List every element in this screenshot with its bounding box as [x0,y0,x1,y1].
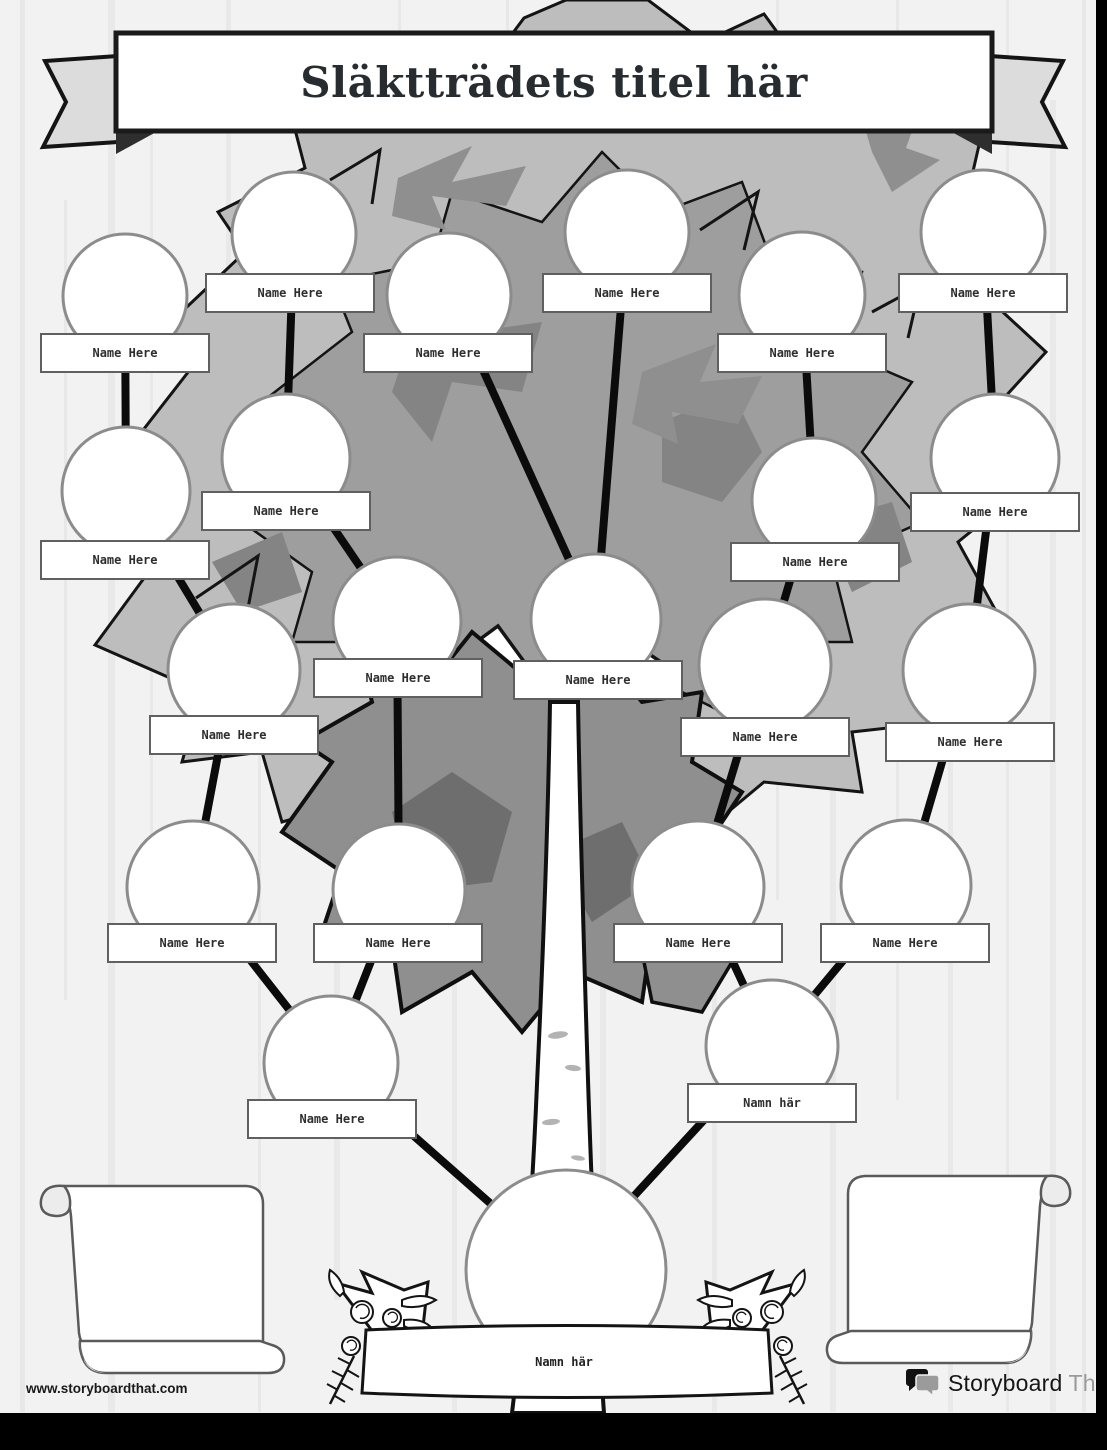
person-name-label[interactable]: Name Here [680,717,850,757]
person-photo-placeholder[interactable] [699,599,831,731]
person-name-label[interactable]: Name Here [613,923,783,963]
person-name-label[interactable]: Name Here [149,715,319,755]
person-name-label[interactable]: Name Here [107,923,277,963]
person-name-label[interactable]: Name Here [313,923,483,963]
person-name-label[interactable]: Name Here [898,273,1068,313]
person-name-label[interactable]: Name Here [205,273,375,313]
person-name-label[interactable]: Name Here [542,273,712,313]
storyboardthat-logo: StoryboardThat [906,1368,1107,1398]
person-name-label[interactable]: Name Here [363,333,533,373]
person-photo-placeholder[interactable] [903,604,1035,736]
person-name-label[interactable]: Name Here [313,658,483,698]
person-photo-placeholder[interactable] [62,427,190,555]
person-name-label[interactable]: Name Here [885,722,1055,762]
person-name-label[interactable]: Name Here [730,542,900,582]
person-name-label[interactable]: Name Here [820,923,990,963]
root-name-label[interactable]: Namn här [414,1347,714,1377]
brand-text-black: Storyboard [948,1370,1063,1397]
watermark-url: www.storyboardthat.com [26,1381,188,1396]
person-name-label[interactable]: Name Here [40,333,210,373]
person-name-label[interactable]: Name Here [247,1099,417,1139]
speech-bubbles-icon [906,1368,942,1398]
banner-tail-left [43,56,118,147]
person-name-label[interactable]: Name Here [40,540,210,580]
bottom-edge-bar [0,1413,1107,1450]
family-tree-title[interactable]: Släktträdets titel här [116,33,992,131]
scroll-placeholder-right[interactable] [827,1176,1070,1363]
person-name-label[interactable]: Name Here [717,333,887,373]
person-name-label[interactable]: Namn här [687,1083,857,1123]
person-name-label[interactable]: Name Here [201,491,371,531]
family-tree-template-page: Släktträdets titel här Namn här www.stor… [0,0,1107,1450]
right-edge-bar [1096,0,1107,1450]
person-name-label[interactable]: Name Here [910,492,1080,532]
person-name-label[interactable]: Name Here [513,660,683,700]
scroll-placeholder-left[interactable] [41,1186,284,1373]
